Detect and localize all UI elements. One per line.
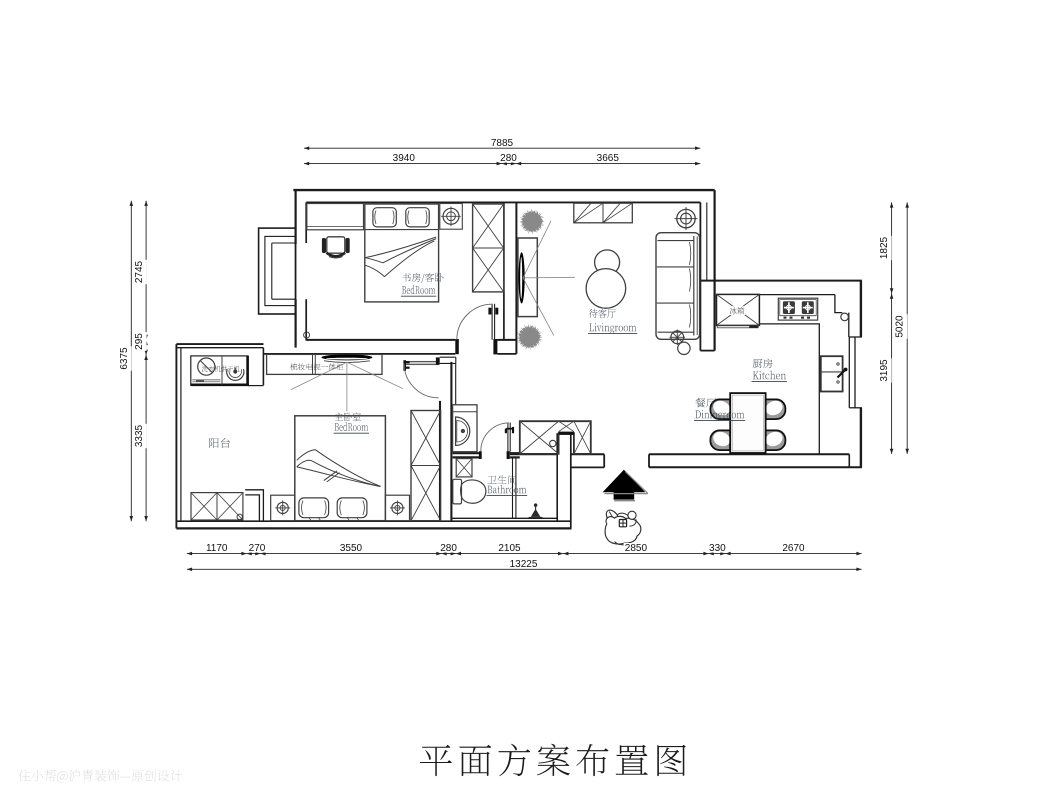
svg-text:13225: 13225 bbox=[510, 559, 538, 570]
svg-text:3665: 3665 bbox=[597, 153, 620, 164]
svg-text:2670: 2670 bbox=[782, 543, 805, 554]
svg-text:1170: 1170 bbox=[206, 543, 228, 554]
svg-text:280: 280 bbox=[500, 153, 517, 164]
svg-text:3550: 3550 bbox=[340, 543, 363, 554]
svg-text:270: 270 bbox=[249, 543, 266, 554]
svg-text:330: 330 bbox=[709, 543, 726, 554]
svg-text:1825: 1825 bbox=[879, 236, 890, 259]
svg-text:7885: 7885 bbox=[491, 138, 514, 149]
svg-text:3940: 3940 bbox=[393, 153, 416, 164]
svg-text:3335: 3335 bbox=[134, 424, 145, 447]
svg-text:6375: 6375 bbox=[119, 347, 130, 370]
svg-text:280: 280 bbox=[440, 543, 457, 554]
svg-text:2745: 2745 bbox=[134, 260, 145, 283]
svg-text:5020: 5020 bbox=[895, 315, 906, 338]
svg-text:3195: 3195 bbox=[879, 359, 890, 382]
svg-text:2105: 2105 bbox=[498, 543, 521, 554]
svg-text:2850: 2850 bbox=[625, 543, 648, 554]
svg-text:295: 295 bbox=[134, 333, 145, 350]
